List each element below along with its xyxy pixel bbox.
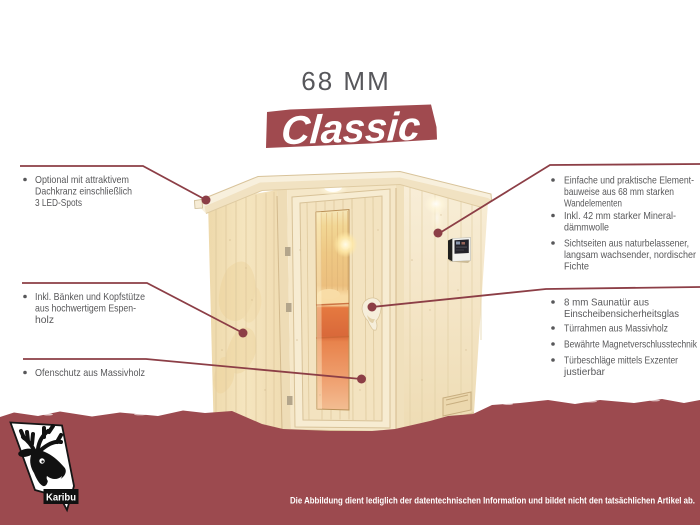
svg-text:Dachkranz einschließlich: Dachkranz einschließlich xyxy=(35,186,132,198)
svg-text:Karibu: Karibu xyxy=(46,492,76,504)
svg-text:Einfache und praktische Elemen: Einfache und praktische Element- xyxy=(564,175,694,187)
svg-text:3 LED-Spots: 3 LED-Spots xyxy=(35,197,82,209)
svg-text:holz: holz xyxy=(35,314,54,326)
svg-text:Wandelementen: Wandelementen xyxy=(564,198,622,210)
svg-text:Inkl. 42 mm starker Mineral-: Inkl. 42 mm starker Mineral- xyxy=(564,210,676,222)
svg-text:aus hochwertigem Espen-: aus hochwertigem Espen- xyxy=(35,303,136,315)
svg-text:Türbeschläge mittels Exzenter: Türbeschläge mittels Exzenter xyxy=(564,355,678,367)
svg-text:8 mm Saunatür aus: 8 mm Saunatür aus xyxy=(564,297,649,309)
svg-text:Classic: Classic xyxy=(280,105,422,154)
svg-text:Türrahmen aus Massivholz: Türrahmen aus Massivholz xyxy=(564,323,668,335)
svg-text:Die Abbildung dient lediglich: Die Abbildung dient lediglich der datent… xyxy=(290,496,695,506)
svg-text:Einscheibensicherheitsglas: Einscheibensicherheitsglas xyxy=(564,308,679,320)
svg-text:Sichtseiten aus naturbelassene: Sichtseiten aus naturbelassener, xyxy=(564,238,689,250)
svg-text:Bewährte Magnetverschlusstechn: Bewährte Magnetverschlusstechnik xyxy=(564,339,698,351)
svg-text:langsam wachsender, nordischer: langsam wachsender, nordischer xyxy=(564,249,696,261)
svg-text:Ofenschutz aus Massivholz: Ofenschutz aus Massivholz xyxy=(35,367,145,379)
svg-text:justierbar: justierbar xyxy=(563,366,605,378)
svg-text:68 MM: 68 MM xyxy=(301,66,390,96)
svg-text:Fichte: Fichte xyxy=(564,261,589,273)
svg-text:Inkl. Bänken und Kopfstütze: Inkl. Bänken und Kopfstütze xyxy=(35,291,145,303)
svg-text:Optional mit attraktivem: Optional mit attraktivem xyxy=(35,174,129,186)
svg-text:dämmwolle: dämmwolle xyxy=(564,222,609,234)
svg-text:bauweise aus 68 mm starken: bauweise aus 68 mm starken xyxy=(564,186,674,198)
